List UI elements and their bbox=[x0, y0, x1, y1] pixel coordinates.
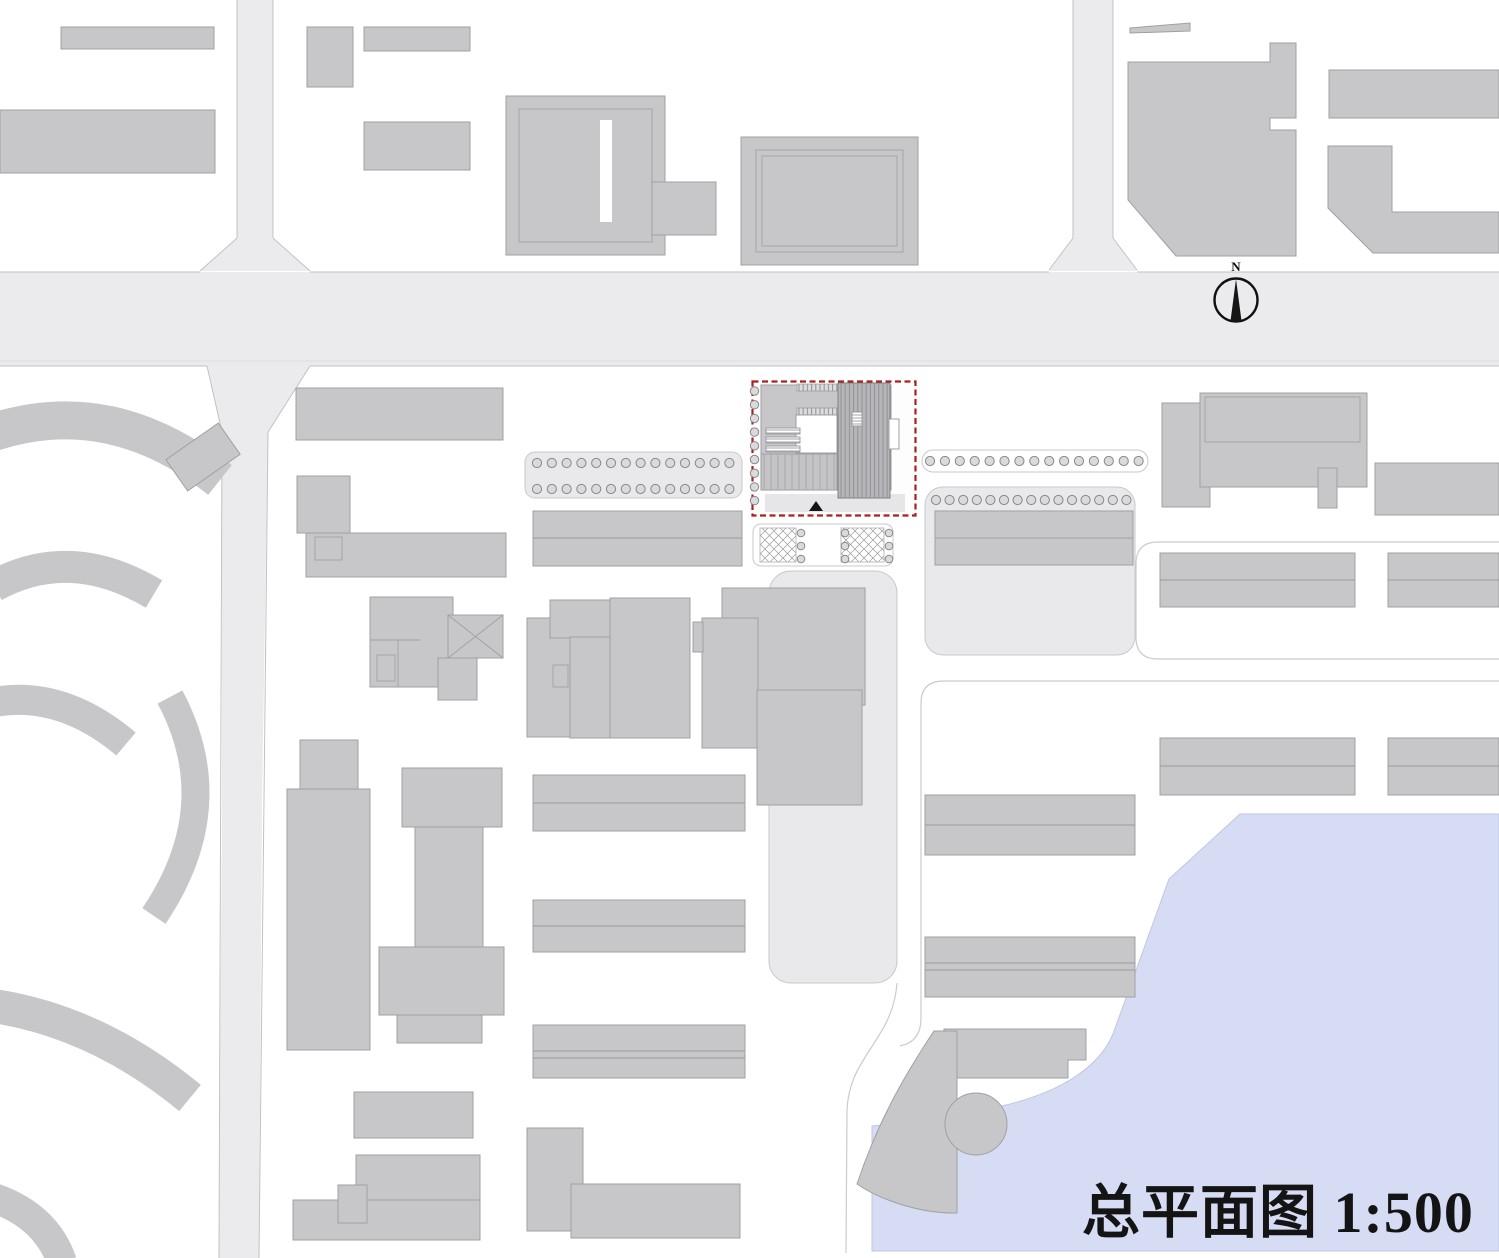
site-plan-canvas: N 总平面图 1:500 bbox=[0, 0, 1499, 1258]
building bbox=[356, 1155, 480, 1201]
building bbox=[438, 658, 477, 700]
building bbox=[300, 740, 358, 789]
building bbox=[702, 618, 758, 748]
tree-icon bbox=[636, 484, 645, 493]
highlighted-project-site bbox=[752, 381, 916, 516]
tree-icon bbox=[725, 458, 734, 467]
building bbox=[293, 1200, 480, 1240]
building bbox=[925, 937, 1135, 997]
building bbox=[610, 598, 690, 738]
building bbox=[550, 600, 610, 638]
building bbox=[1200, 393, 1367, 487]
tree-icon bbox=[1000, 456, 1009, 465]
tree-icon bbox=[1015, 456, 1024, 465]
tree-icon bbox=[666, 458, 675, 467]
site-plan-drawing: N 总平面图 1:500 bbox=[0, 0, 1499, 1258]
tree-icon bbox=[999, 495, 1008, 504]
site-stair-treads bbox=[852, 412, 862, 426]
quay-round-structure bbox=[945, 1093, 1007, 1155]
building bbox=[1128, 43, 1296, 256]
site-louvers bbox=[766, 428, 800, 452]
tree-icon bbox=[1108, 495, 1117, 504]
tree-icon bbox=[1040, 495, 1049, 504]
building-notch bbox=[600, 120, 612, 222]
tree-icon bbox=[885, 555, 893, 563]
tree-icon bbox=[940, 456, 949, 465]
tree-icon bbox=[695, 484, 704, 493]
tree-icon bbox=[1030, 456, 1039, 465]
tree-icon bbox=[1060, 456, 1069, 465]
tree-icon bbox=[1122, 495, 1131, 504]
tree-icon bbox=[1081, 495, 1090, 504]
quay-building bbox=[944, 1029, 1086, 1078]
tree-icon bbox=[750, 496, 758, 504]
site-ribbed-roof-stripes bbox=[838, 383, 890, 498]
road-main-horizontal bbox=[0, 272, 1499, 366]
tree-icon bbox=[955, 456, 964, 465]
tree-icon bbox=[1104, 456, 1113, 465]
tree-icon bbox=[621, 484, 630, 493]
building bbox=[533, 1025, 745, 1078]
tree-icon bbox=[636, 458, 645, 467]
tree-icon bbox=[750, 387, 758, 395]
building bbox=[364, 27, 470, 51]
tree-icon bbox=[1095, 495, 1104, 504]
tree-icon bbox=[592, 484, 601, 493]
building bbox=[61, 27, 214, 49]
site-east-canopy bbox=[889, 419, 899, 449]
tree-icon bbox=[1054, 495, 1063, 504]
site-canopy-ribs-pattern bbox=[797, 384, 838, 391]
tree-icon bbox=[547, 484, 556, 493]
tree-icon bbox=[1119, 456, 1128, 465]
tree-icon bbox=[885, 529, 893, 537]
plan-title: 总平面图 1:500 bbox=[1082, 1180, 1474, 1245]
tree-icon bbox=[680, 458, 689, 467]
tree-icon bbox=[695, 458, 704, 467]
building bbox=[354, 1092, 473, 1138]
tree-icon bbox=[945, 495, 954, 504]
tree-icon bbox=[1027, 495, 1036, 504]
building bbox=[0, 110, 215, 173]
tree-icon bbox=[750, 428, 758, 436]
tree-icon bbox=[959, 495, 968, 504]
tree-icon bbox=[750, 483, 758, 491]
tree-icon bbox=[797, 555, 805, 563]
tree-icon bbox=[885, 542, 893, 550]
building bbox=[297, 476, 350, 533]
tree-icon bbox=[797, 529, 805, 537]
tree-icon bbox=[606, 458, 615, 467]
building bbox=[693, 622, 703, 652]
building bbox=[1318, 468, 1337, 508]
building bbox=[935, 511, 1133, 538]
tree-icon bbox=[532, 484, 541, 493]
tree-icon bbox=[1045, 456, 1054, 465]
tree-icon bbox=[562, 458, 571, 467]
tree-icon bbox=[750, 469, 758, 477]
tree-icon bbox=[750, 401, 758, 409]
building bbox=[571, 1184, 740, 1238]
site-colonnade-columns bbox=[761, 454, 837, 490]
building bbox=[1329, 70, 1499, 118]
tree-icon bbox=[592, 458, 601, 467]
tree-icon bbox=[925, 456, 934, 465]
building bbox=[364, 122, 470, 170]
tree-icon bbox=[841, 529, 849, 537]
tree-icon bbox=[621, 458, 630, 467]
building bbox=[287, 789, 370, 1050]
building bbox=[415, 827, 483, 948]
tree-icon bbox=[680, 484, 689, 493]
tree-icon bbox=[710, 484, 719, 493]
tree-icon bbox=[606, 484, 615, 493]
tree-icon bbox=[577, 484, 586, 493]
tree-icon bbox=[986, 495, 995, 504]
building bbox=[1160, 738, 1355, 795]
building bbox=[379, 947, 504, 1015]
tree-pad-west bbox=[525, 452, 742, 498]
building bbox=[533, 511, 742, 566]
tree-icon bbox=[841, 542, 849, 550]
tree-icon bbox=[931, 495, 940, 504]
tree-icon bbox=[725, 484, 734, 493]
tree-icon bbox=[985, 456, 994, 465]
tree-icon bbox=[1134, 456, 1143, 465]
building bbox=[397, 1015, 482, 1043]
building bbox=[402, 768, 502, 827]
tree-icon bbox=[750, 455, 758, 463]
tree-icon bbox=[972, 495, 981, 504]
tree-icon bbox=[710, 458, 719, 467]
building bbox=[1375, 463, 1499, 515]
tree-icon bbox=[547, 458, 556, 467]
tree-icon bbox=[1013, 495, 1022, 504]
tree-icon bbox=[651, 458, 660, 467]
tree-icon bbox=[750, 442, 758, 450]
tree-icon bbox=[1089, 456, 1098, 465]
tree-icon bbox=[797, 542, 805, 550]
tree-icon bbox=[562, 484, 571, 493]
tree-icon bbox=[841, 555, 849, 563]
building bbox=[307, 27, 353, 87]
building bbox=[1388, 738, 1499, 795]
building bbox=[935, 538, 1133, 565]
tree-icon bbox=[666, 484, 675, 493]
building bbox=[757, 690, 862, 805]
tree-icon bbox=[577, 458, 586, 467]
tree-icon bbox=[750, 414, 758, 422]
building bbox=[306, 533, 506, 577]
tree-icon bbox=[970, 456, 979, 465]
tree-icon bbox=[532, 458, 541, 467]
tree-icon bbox=[1074, 456, 1083, 465]
site-canopy-ribs-pattern bbox=[797, 408, 838, 415]
building bbox=[338, 1185, 367, 1223]
building bbox=[506, 96, 665, 255]
tree-icon bbox=[1067, 495, 1076, 504]
tree-icon bbox=[651, 484, 660, 493]
building bbox=[652, 182, 716, 235]
building bbox=[296, 388, 503, 440]
site-courtyard bbox=[796, 415, 837, 453]
compass-north-label: N bbox=[1231, 259, 1241, 274]
building bbox=[570, 637, 610, 738]
